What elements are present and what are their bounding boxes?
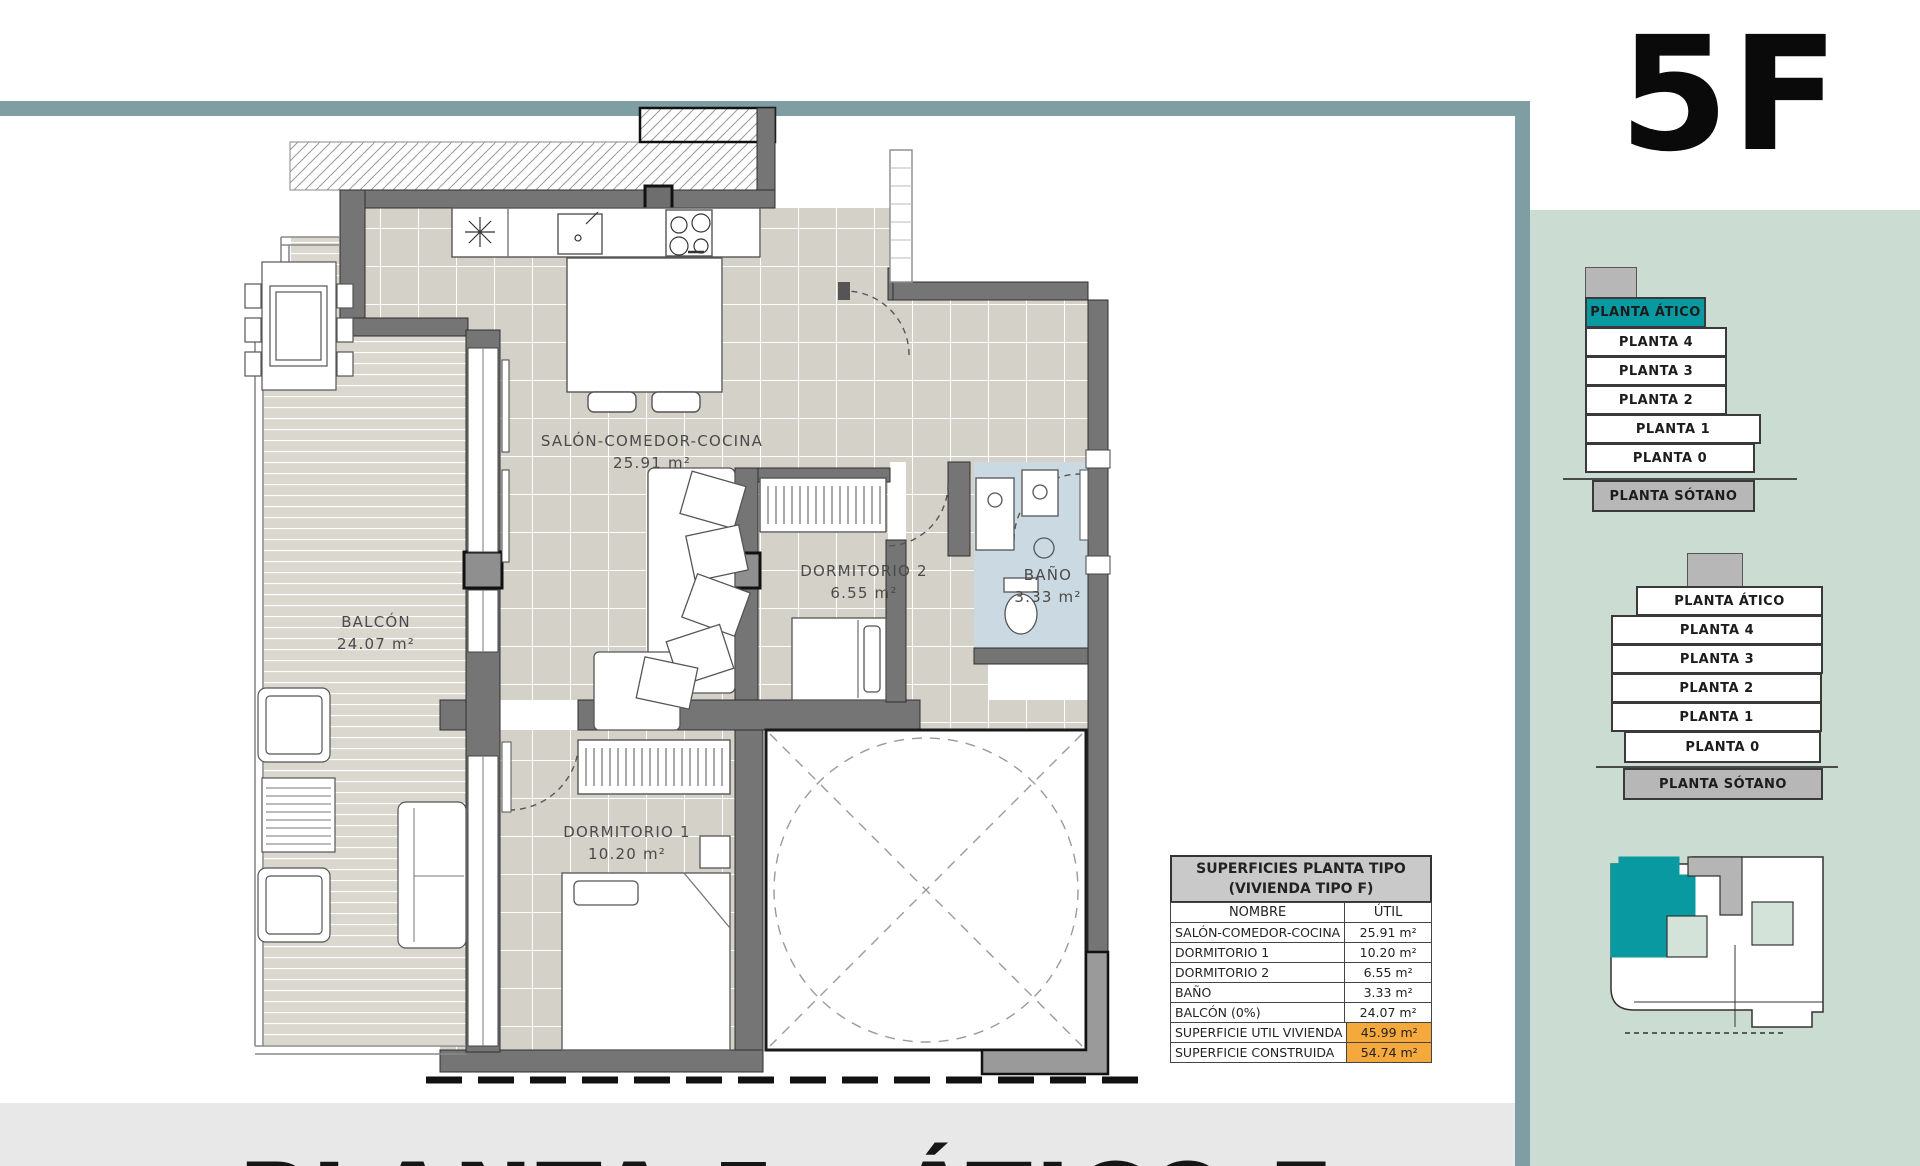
row-value: 24.07 m² <box>1345 1003 1432 1023</box>
stack2-level-p2: PLANTA 2 <box>1611 673 1822 703</box>
stack2-level-p4: PLANTA 4 <box>1611 615 1823 645</box>
surface-columns-row: NOMBRE ÚTIL <box>1171 903 1432 923</box>
wardrobe-dorm1 <box>578 740 730 794</box>
entry-walkway <box>890 150 912 282</box>
stack1-level-p0: PLANTA 0 <box>1585 443 1755 473</box>
stack1-level-p2: PLANTA 2 <box>1585 385 1727 415</box>
row-value: 25.91 m² <box>1345 923 1432 943</box>
table-row: DORMITORIO 1 10.20 m² <box>1171 943 1432 963</box>
stack1-level-atico: PLANTA ÁTICO <box>1585 297 1706 328</box>
surface-rows-table: NOMBRE ÚTIL SALÓN-COMEDOR-COCINA 25.91 m… <box>1170 902 1432 1023</box>
room-label-dorm2: DORMITORIO 2 <box>800 562 927 580</box>
table-row: BALCÓN (0%) 24.07 m² <box>1171 1003 1432 1023</box>
col-header-name: NOMBRE <box>1171 903 1345 923</box>
room-area-dorm2: 6.55 m² <box>830 584 897 602</box>
row-value: 3.33 m² <box>1345 983 1432 1003</box>
surface-table-header: SUPERFICIES PLANTA TIPO (VIVIENDA TIPO F… <box>1170 855 1432 903</box>
table-row: SALÓN-COMEDOR-COCINA 25.91 m² <box>1171 923 1432 943</box>
row-value: 6.55 m² <box>1345 963 1432 983</box>
stack2-level-atico: PLANTA ÁTICO <box>1636 586 1823 616</box>
table-row-total: SUPERFICIE CONSTRUIDA 54.74 m² <box>1171 1043 1432 1063</box>
roof-hatch <box>290 108 775 190</box>
room-area-balcon: 24.07 m² <box>337 635 415 653</box>
stack2-roof <box>1687 553 1743 587</box>
room-area-bano: 3.33 m² <box>1014 588 1081 606</box>
row-value: 10.20 m² <box>1345 943 1432 963</box>
col-header-value: ÚTIL <box>1345 903 1432 923</box>
table-row: DORMITORIO 2 6.55 m² <box>1171 963 1432 983</box>
surface-table-title1: SUPERFICIES PLANTA TIPO <box>1172 859 1430 879</box>
wardrobe-dorm2 <box>760 478 886 532</box>
stack2-level-p0: PLANTA 0 <box>1624 731 1821 763</box>
sheet-title: PLANTA 5 - ÁTICO F <box>238 1143 1337 1166</box>
total-name: SUPERFICIE UTIL VIVIENDA <box>1171 1023 1347 1043</box>
row-name: BAÑO <box>1171 983 1345 1003</box>
row-name: SALÓN-COMEDOR-COCINA <box>1171 923 1345 943</box>
door-jamb <box>838 282 850 300</box>
floor-plan-drawing: SALÓN-COMEDOR-COCINA 25.91 m² DORMITORIO… <box>0 0 1920 1166</box>
total-value: 54.74 m² <box>1347 1043 1432 1063</box>
kitchen-counter <box>452 208 760 257</box>
dining-table <box>567 258 722 412</box>
surface-totals-table: SUPERFICIE UTIL VIVIENDA 45.99 m² SUPERF… <box>1170 1022 1432 1063</box>
stack2-level-sotano: PLANTA SÓTANO <box>1623 768 1823 800</box>
row-name: DORMITORIO 2 <box>1171 963 1345 983</box>
stair-core <box>766 730 1086 1050</box>
bottom-title-band: PLANTA 5 - ÁTICO F <box>0 1103 1515 1166</box>
room-label-bano: BAÑO <box>1024 565 1072 584</box>
stack2-level-p3: PLANTA 3 <box>1611 644 1823 674</box>
total-name: SUPERFICIE CONSTRUIDA <box>1171 1043 1347 1063</box>
stack2-level-p1: PLANTA 1 <box>1611 702 1822 732</box>
stack1-level-p1: PLANTA 1 <box>1585 414 1761 444</box>
stack1-level-p3: PLANTA 3 <box>1585 356 1727 386</box>
room-label-salon: SALÓN-COMEDOR-COCINA <box>541 431 763 450</box>
row-name: BALCÓN (0%) <box>1171 1003 1345 1023</box>
room-label-dorm1: DORMITORIO 1 <box>563 823 690 841</box>
mini-site-plan <box>1611 857 1823 1033</box>
row-name: DORMITORIO 1 <box>1171 943 1345 963</box>
table-row: BAÑO 3.33 m² <box>1171 983 1432 1003</box>
fridge-icon <box>465 217 495 247</box>
total-value: 45.99 m² <box>1347 1023 1432 1043</box>
door-leaf <box>502 742 511 812</box>
stack1-level-sotano: PLANTA SÓTANO <box>1592 480 1755 512</box>
room-area-dorm1: 10.20 m² <box>588 845 666 863</box>
table-row-total: SUPERFICIE UTIL VIVIENDA 45.99 m² <box>1171 1023 1432 1043</box>
surface-table: SUPERFICIES PLANTA TIPO (VIVIENDA TIPO F… <box>1170 855 1432 1063</box>
room-area-salon: 25.91 m² <box>613 454 691 472</box>
room-label-balcon: BALCÓN <box>341 612 411 631</box>
surface-table-title2: (VIVIENDA TIPO F) <box>1172 879 1430 899</box>
stack1-level-p4: PLANTA 4 <box>1585 327 1727 357</box>
plan-sheet: 5F <box>0 0 1920 1166</box>
pillar-block <box>464 552 502 588</box>
bed-dorm2 <box>792 618 886 700</box>
door-leaf <box>1080 470 1088 540</box>
stack1-roof <box>1585 267 1637 298</box>
